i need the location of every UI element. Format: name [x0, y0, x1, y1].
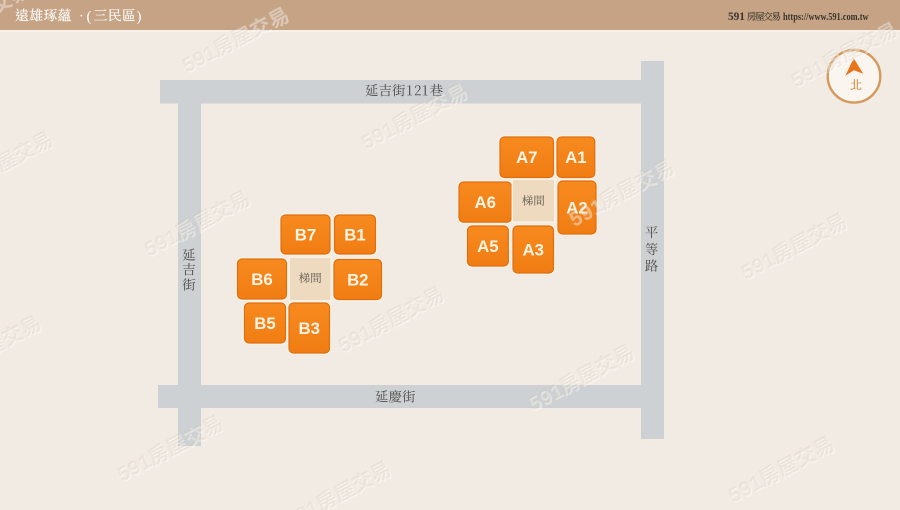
svg-text:A7: A7 [516, 148, 537, 167]
svg-text:B3: B3 [298, 319, 319, 338]
svg-text:B7: B7 [295, 226, 316, 245]
svg-text:B5: B5 [254, 314, 275, 333]
svg-text:A1: A1 [565, 148, 586, 167]
svg-text:(: ( [87, 9, 92, 25]
svg-text:A5: A5 [477, 237, 498, 256]
svg-text:A3: A3 [522, 241, 543, 260]
svg-text:591: 591 [728, 11, 745, 23]
svg-text:B2: B2 [347, 271, 368, 290]
svg-text:B6: B6 [251, 270, 272, 289]
svg-text:A6: A6 [474, 193, 495, 212]
svg-text:B1: B1 [344, 226, 365, 245]
svg-text:https://www.591.com.tw: https://www.591.com.tw [783, 11, 869, 23]
svg-text:·: · [79, 9, 84, 24]
svg-text:): ) [137, 9, 142, 25]
